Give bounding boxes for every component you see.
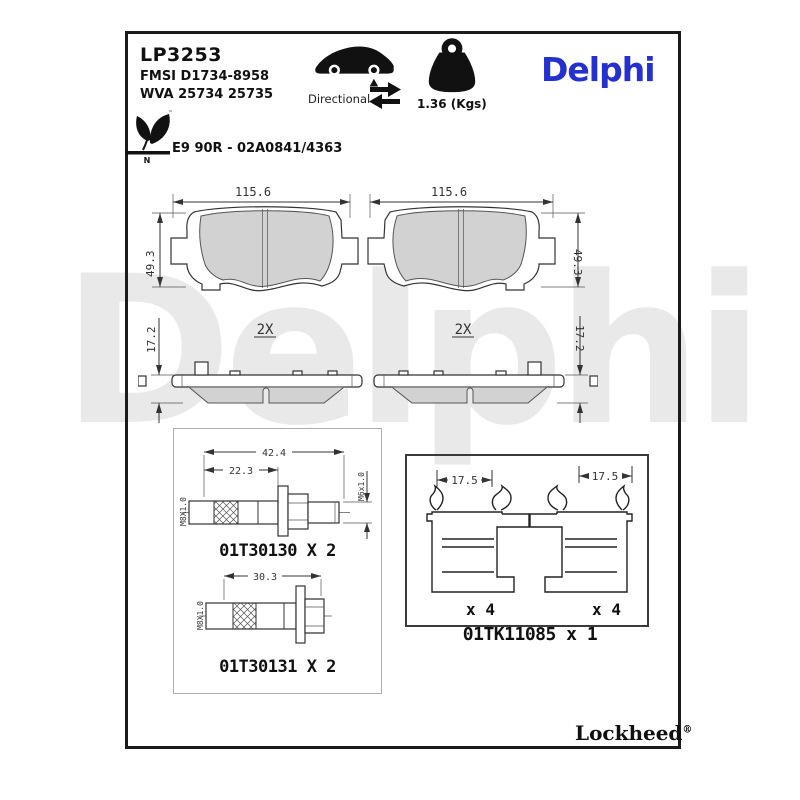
wva-number: WVA 25734 25735: [140, 87, 273, 102]
hex-head: [305, 599, 324, 633]
sensor-tab: [528, 362, 541, 375]
mirrored-pad: [368, 207, 555, 291]
flange: [278, 486, 288, 536]
plate-stub: [138, 376, 146, 386]
length-dimension: 30.3: [224, 572, 321, 600]
mirrored-profile: [374, 362, 598, 403]
directional-label: Directional: [308, 92, 370, 106]
flange: [296, 586, 305, 643]
delphi-logo: Delphi: [541, 50, 655, 89]
knurl-section: [214, 501, 238, 524]
trademark-symbol: ™: [168, 110, 172, 116]
fmsi-number: FMSI D1734-8958: [140, 69, 269, 84]
weight-icon: [423, 38, 481, 96]
bolt2-label: 01T30131 X 2: [174, 657, 381, 677]
qty-label: 2X: [455, 322, 472, 338]
clip-right: [530, 486, 632, 592]
clip-label: 01TK11085 x 1: [425, 624, 635, 645]
threaded-stud: [308, 502, 339, 523]
pad-front-left-drawing: 115.6 49.3: [138, 176, 363, 308]
bolt1-drawing: 42.4 22.3 M6x1.0 M8X1.0: [174, 439, 381, 549]
svg-text:22.3: 22.3: [229, 466, 253, 477]
approval-number: E9 90R - 02A0841/4363: [172, 141, 342, 156]
svg-text:115.6: 115.6: [431, 185, 467, 199]
friction-profile: [190, 387, 343, 403]
svg-text:17.5: 17.5: [451, 474, 478, 487]
pad-front-right-drawing: 115.6 49.3: [363, 176, 588, 308]
pad-side-left-drawing: 2X 17.2: [138, 308, 363, 426]
thread-left-label: M8X1.0: [196, 601, 205, 630]
bolt1-label: 01T30130 X 2: [174, 541, 381, 561]
thickness-dimension: 17.2: [145, 318, 183, 423]
eco-mark-letter: N: [144, 156, 151, 165]
friction-material: [200, 211, 333, 287]
clip-right-qty: x 4: [579, 600, 634, 619]
thickness-dimension: 17.2: [557, 316, 588, 423]
thread-right-dimension: M6x1.0: [343, 471, 372, 539]
bolt2-drawing: 30.3 M8X1.0: [174, 564, 381, 654]
svg-text:42.4: 42.4: [262, 448, 286, 459]
directional-arrows-icon: [368, 81, 402, 110]
clip-left: [427, 486, 529, 592]
knurl-section: [233, 603, 256, 629]
car-body: [315, 47, 393, 74]
lockheed-text: Lockheed: [575, 721, 682, 745]
svg-text:30.3: 30.3: [253, 572, 277, 583]
sensor-tab: [195, 362, 208, 375]
lockheed-logo: Lockheed®: [575, 721, 692, 745]
eco-leaf-icon: N ™: [126, 107, 172, 165]
svg-text:M6x1.0: M6x1.0: [357, 472, 366, 501]
part-number: LP3253: [140, 44, 222, 66]
svg-text:17.2: 17.2: [145, 327, 158, 354]
svg-text:17.5: 17.5: [592, 470, 619, 483]
length-dimension: 42.4: [204, 448, 344, 499]
registered-symbol: ®: [682, 724, 692, 735]
svg-text:115.6: 115.6: [235, 185, 271, 199]
thread-left-label: M8X1.0: [179, 497, 188, 526]
svg-text:49.3: 49.3: [571, 249, 584, 276]
qty-label: 2X: [257, 322, 274, 338]
friction-material: [393, 211, 526, 287]
leaf-right: [150, 114, 170, 144]
clip-right-dimension: 17.5: [579, 466, 632, 483]
clip-left-qty: x 4: [453, 600, 508, 619]
hex-section: [288, 494, 308, 529]
weight-value: 1.36 (Kgs): [417, 97, 487, 111]
clip-left-dimension: 17.5: [437, 470, 492, 487]
svg-text:49.3: 49.3: [144, 251, 157, 278]
plate-profile: [172, 375, 362, 387]
clip-box: 17.5 17.5 x 4 x 4: [405, 454, 649, 627]
bolt-box: 42.4 22.3 M6x1.0 M8X1.0 01T: [173, 428, 382, 694]
svg-text:17.2: 17.2: [573, 325, 586, 352]
shoulder-dimension: 22.3: [204, 466, 278, 499]
pad-side-right-drawing: 2X 17.2: [373, 308, 598, 426]
